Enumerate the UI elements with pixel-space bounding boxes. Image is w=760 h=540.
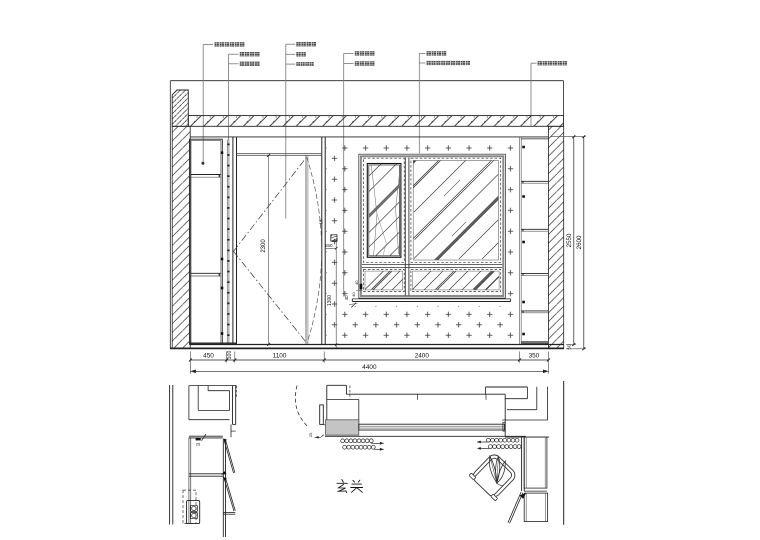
svg-text:40: 40: [344, 295, 349, 300]
svg-text:40: 40: [351, 292, 356, 297]
svg-text:50: 50: [566, 344, 571, 350]
svg-text:40: 40: [354, 280, 359, 285]
svg-text:4400: 4400: [362, 364, 377, 371]
svg-text:25: 25: [196, 442, 201, 447]
svg-text:2600: 2600: [576, 235, 583, 249]
svg-text:25: 25: [309, 433, 313, 437]
svg-text:450: 450: [203, 353, 214, 360]
svg-text:350: 350: [529, 353, 540, 360]
svg-text:1100: 1100: [273, 353, 287, 360]
svg-text:1300: 1300: [327, 295, 333, 306]
svg-text:2550: 2550: [566, 233, 573, 247]
svg-text:2400: 2400: [415, 353, 430, 360]
svg-text:15: 15: [319, 219, 325, 225]
svg-text:100: 100: [227, 351, 233, 360]
svg-text:2300: 2300: [261, 239, 267, 253]
